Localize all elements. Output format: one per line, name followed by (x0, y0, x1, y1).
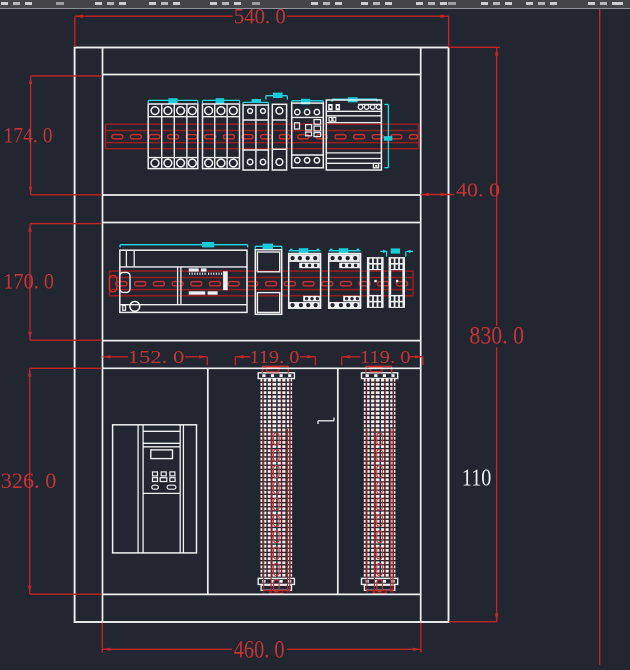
svg-text:830. 0: 830. 0 (469, 321, 524, 350)
svg-text:326. 0: 326. 0 (1, 468, 57, 493)
svg-text:119. 0: 119. 0 (360, 347, 411, 367)
svg-text:174. 0: 174. 0 (4, 123, 53, 148)
svg-text:110: 110 (462, 464, 491, 491)
svg-text:40. 0: 40. 0 (456, 179, 500, 201)
svg-text:119. 0: 119. 0 (249, 347, 299, 367)
svg-text:460. 0: 460. 0 (234, 636, 285, 663)
svg-text:152. 0: 152. 0 (128, 347, 185, 367)
svg-text:170. 0: 170. 0 (3, 268, 54, 293)
